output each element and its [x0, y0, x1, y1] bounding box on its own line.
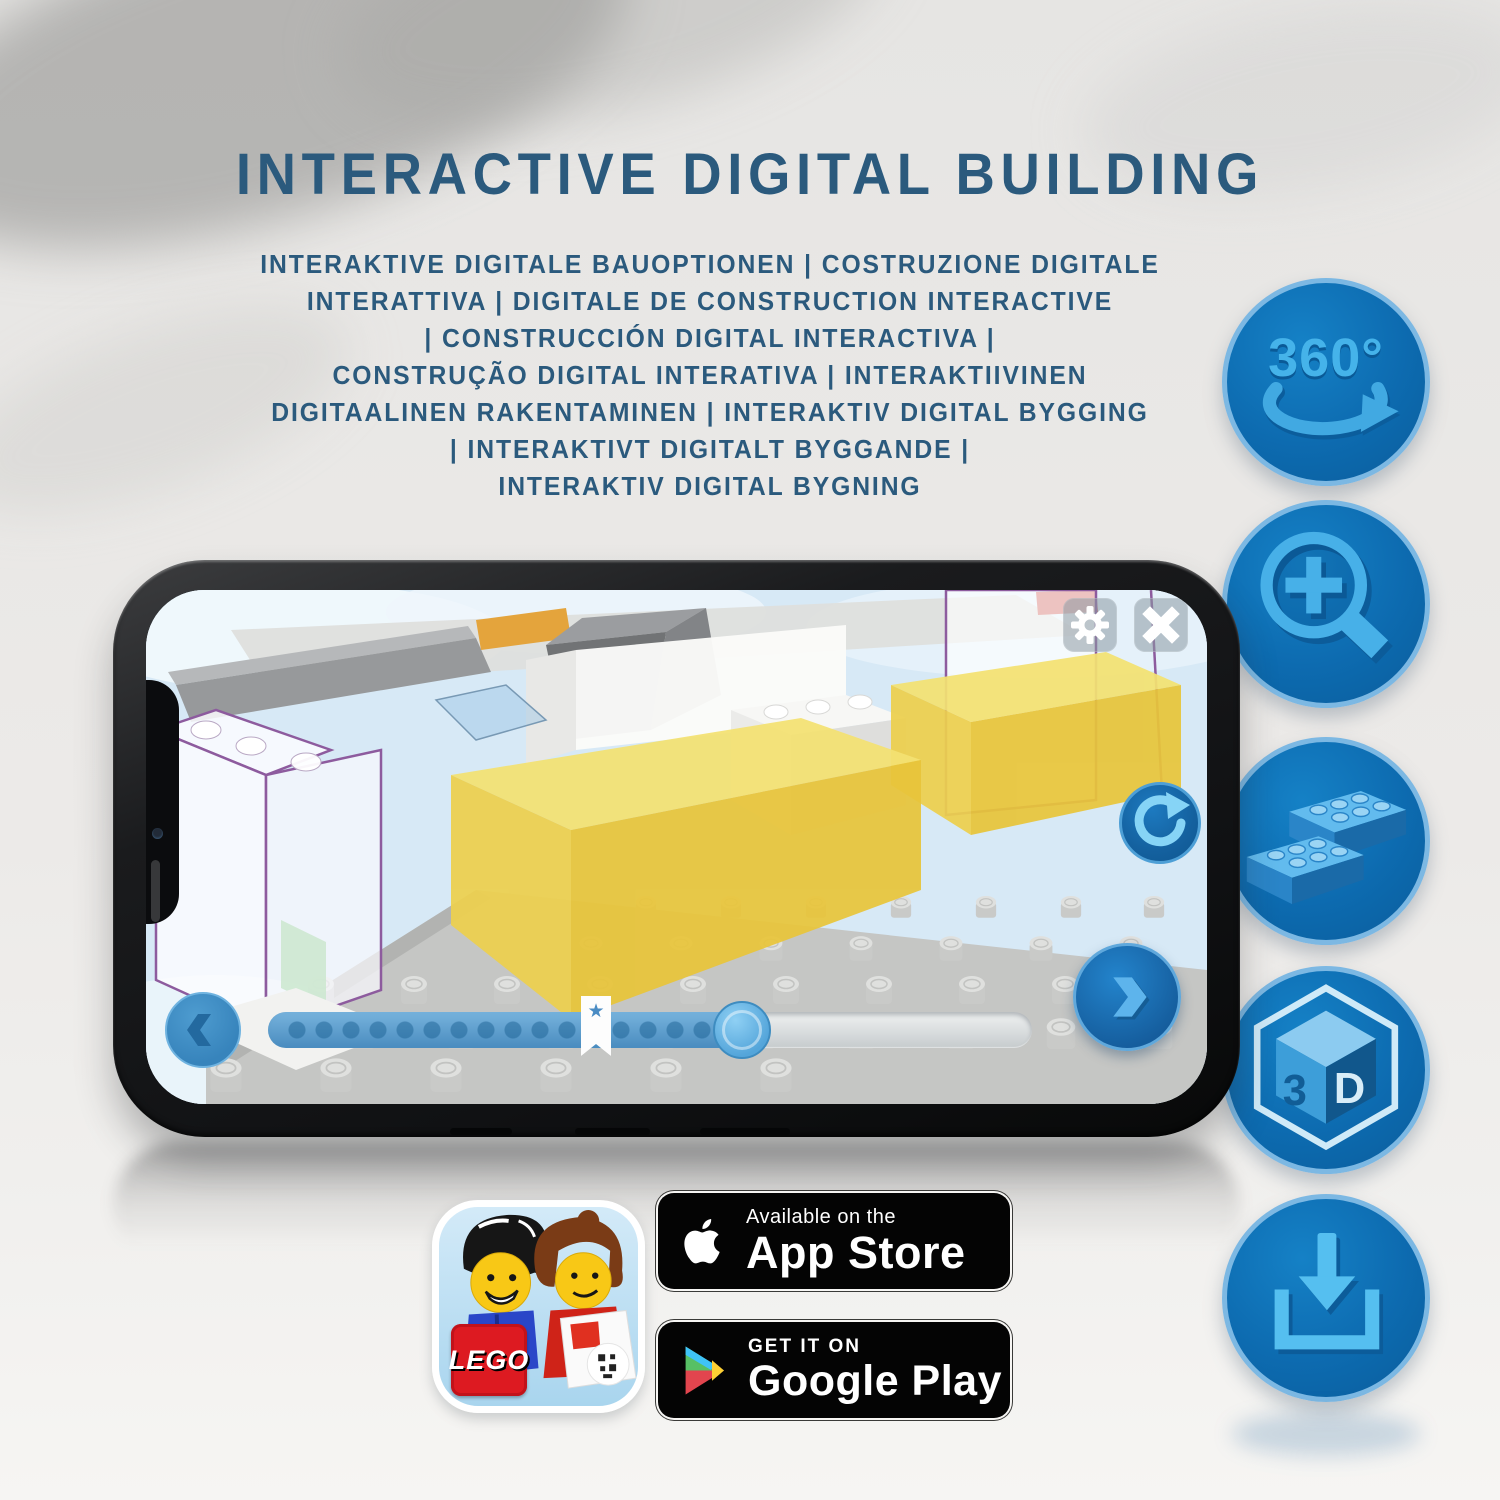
earpiece-speaker [151, 860, 160, 922]
lego-brick-icon [1227, 742, 1425, 940]
chevron-right-icon [1076, 946, 1178, 1048]
app-store-line1: Available on the [746, 1206, 966, 1229]
zoom-in-icon [1227, 505, 1425, 703]
chevron-left-icon [167, 994, 239, 1066]
feature-3d-badge: 3 D [1222, 966, 1430, 1174]
app-store-badge[interactable]: Available on the App Store [658, 1193, 1010, 1289]
feature-download-badge [1222, 1194, 1430, 1402]
google-play-line2: Google Play [748, 1358, 1002, 1404]
app-store-line2: App Store [746, 1229, 966, 1276]
subtitle-line: | INTERAKTIVT DIGITALT BYGGANDE | [140, 431, 1280, 468]
rotate-reset-button[interactable] [1119, 782, 1201, 864]
feature-zoom-badge [1222, 500, 1430, 708]
phone-notch [146, 680, 179, 924]
feature-360-badge: 360° [1222, 278, 1430, 486]
google-play-triangle-icon [682, 1344, 730, 1397]
cube-3-label: 3 [1283, 1067, 1307, 1115]
lego-app-promo-page: INTERACTIVE DIGITAL BUILDING INTERAKTIVE… [0, 0, 1500, 1500]
subtitle-line: | CONSTRUCCIÓN DIGITAL INTERACTIVA | [140, 320, 1280, 357]
next-step-button[interactable] [1073, 943, 1181, 1051]
subtitle-line: INTERATTIVA | DIGITALE DE CONSTRUCTION I… [140, 283, 1280, 320]
settings-button[interactable] [1063, 598, 1117, 652]
front-camera [152, 828, 163, 839]
phone-screen: ★ [146, 590, 1207, 1104]
lego-logo-text: LEGO [449, 1345, 530, 1376]
google-play-line1: GET IT ON [748, 1336, 1002, 1358]
360-rotate-arrow-icon [1227, 283, 1425, 481]
feature-brick-badge [1222, 737, 1430, 945]
3d-cube-icon: 3 D [1227, 971, 1425, 1169]
subtitle-line: CONSTRUÇÃO DIGITAL INTERATIVA | INTERAKT… [140, 357, 1280, 394]
progress-dots [284, 1019, 736, 1041]
cube-d-label: D [1334, 1065, 1365, 1113]
rotate-arrow-icon [1122, 785, 1198, 861]
subtitle-line: INTERAKTIV DIGITAL BYGNING [140, 468, 1280, 505]
star-icon: ★ [581, 1000, 611, 1022]
phone-side-button [450, 1128, 512, 1135]
icon-reflection [1232, 1412, 1420, 1456]
subtitle-block: INTERAKTIVE DIGITALE BAUOPTIONEN | COSTR… [140, 246, 1280, 505]
page-title: INTERACTIVE DIGITAL BUILDING [45, 141, 1455, 208]
gear-icon [1063, 598, 1117, 652]
download-icon [1227, 1199, 1425, 1397]
lego-app-icon[interactable]: LEGO [432, 1200, 645, 1413]
previous-step-button[interactable] [165, 992, 241, 1068]
close-icon [1134, 598, 1188, 652]
lego-logo: LEGO [451, 1324, 527, 1396]
phone-side-button [700, 1128, 790, 1135]
subtitle-line: INTERAKTIVE DIGITALE BAUOPTIONEN | COSTR… [140, 246, 1280, 283]
build-progress-slider[interactable]: ★ [268, 1012, 1032, 1048]
apple-logo-icon [682, 1213, 728, 1269]
phone-side-button [575, 1128, 650, 1135]
slider-handle[interactable] [713, 1001, 771, 1059]
phone-mockup: ★ [113, 560, 1240, 1137]
close-button[interactable] [1134, 598, 1188, 652]
subtitle-line: DIGITAALINEN RAKENTAMINEN | INTERAKTIV D… [140, 394, 1280, 431]
google-play-badge[interactable]: GET IT ON Google Play [658, 1322, 1010, 1418]
